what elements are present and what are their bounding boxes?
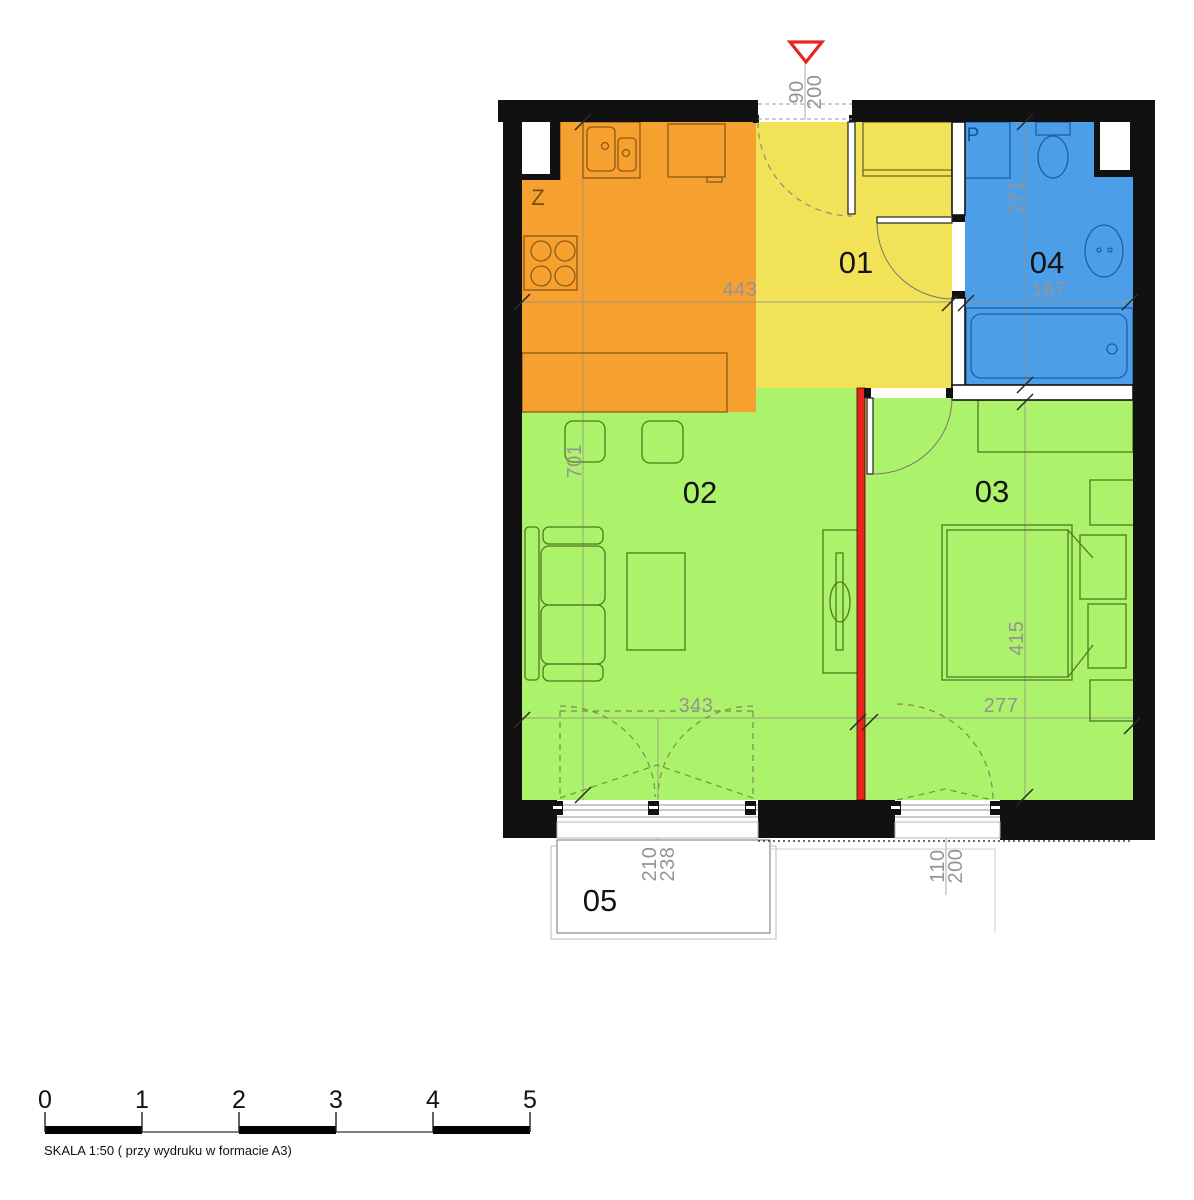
floors [522, 122, 1133, 800]
bottom-wall-middle [758, 800, 895, 838]
scale-number: 5 [523, 1086, 537, 1114]
jamb-icon [648, 801, 659, 815]
new-partition-wall-red [857, 388, 865, 800]
wall-end-cap [952, 215, 965, 222]
bathroom-door-leaf [877, 217, 952, 223]
left-wall [503, 122, 522, 838]
room-label-02: 02 [683, 475, 717, 510]
scale-number: 2 [232, 1086, 246, 1114]
jamb-icon [745, 801, 756, 815]
scale-number: 3 [329, 1086, 343, 1114]
scale-bar-segment [239, 1126, 336, 1134]
washer-label: P [967, 125, 980, 146]
bedroom-door-leaf [867, 398, 873, 474]
dim-window-height: 200 [945, 849, 967, 884]
dim-living-width: 343 [679, 695, 714, 717]
wall-end-cap [952, 291, 965, 298]
scale-bar-segment [45, 1126, 142, 1134]
dim-bathroom-width: 167 [1032, 279, 1067, 301]
scale-bar-segment [433, 1126, 530, 1134]
dim-bedroom-width: 277 [984, 695, 1019, 717]
entrance-arrow-icon [790, 42, 822, 62]
shaft-niche-left [522, 122, 550, 174]
dim-kitchen-hall-width: 443 [723, 279, 758, 301]
bottom-wall-left [503, 800, 557, 838]
jamb-icon [890, 801, 901, 815]
dim-entry-height: 200 [804, 75, 826, 110]
bedroom-door-opening [865, 388, 952, 398]
top-wall-right [852, 100, 1155, 122]
hall-bath-wall-upper [952, 122, 965, 215]
dim-balcony-door-height: 238 [657, 847, 679, 882]
bath-bedroom-wall [952, 385, 1133, 400]
entry-door-leaf [848, 122, 855, 214]
bedroom-window-frame [895, 800, 1000, 822]
jamb-icon [990, 801, 1001, 815]
floor-plan-page: 01 02 03 04 05 Z P 443 167 343 277 701 2… [0, 0, 1194, 1200]
bedroom-window-sill [895, 822, 1000, 838]
dim-bathroom-depth: 271 [1006, 180, 1028, 215]
room-label-04: 04 [1030, 245, 1064, 280]
shaft-niche-right [1100, 122, 1130, 170]
scale-caption: SKALA 1:50 ( przy wydruku w formacie A3) [44, 1143, 292, 1158]
dim-living-depth: 701 [564, 444, 586, 479]
top-wall-left [498, 100, 758, 122]
hall-bath-wall-lower [952, 298, 965, 390]
bottom-wall-right [1000, 800, 1155, 840]
scale-number: 1 [135, 1086, 149, 1114]
right-wall [1133, 122, 1155, 840]
entry-marker [790, 42, 822, 62]
floor-plan-drawing: 01 02 03 04 05 Z P 443 167 343 277 701 2… [0, 0, 1194, 1200]
room-label-01: 01 [839, 245, 873, 280]
scale-number: 4 [426, 1086, 440, 1114]
scale-number: 0 [38, 1086, 52, 1114]
shaft-label: Z [531, 185, 544, 210]
room-label-05: 05 [583, 883, 617, 918]
balcony-door-sill [557, 822, 758, 838]
wall-end-cap [946, 388, 953, 398]
wall-end-cap [864, 388, 871, 398]
dim-bedroom-depth: 415 [1006, 621, 1028, 656]
scale-bar: 0 1 2 3 4 5 SKALA 1:50 ( przy wydruku w … [38, 1086, 537, 1158]
jamb-icon [552, 801, 563, 815]
room-label-03: 03 [975, 474, 1009, 509]
room-03-bedroom-floor [865, 388, 1133, 800]
